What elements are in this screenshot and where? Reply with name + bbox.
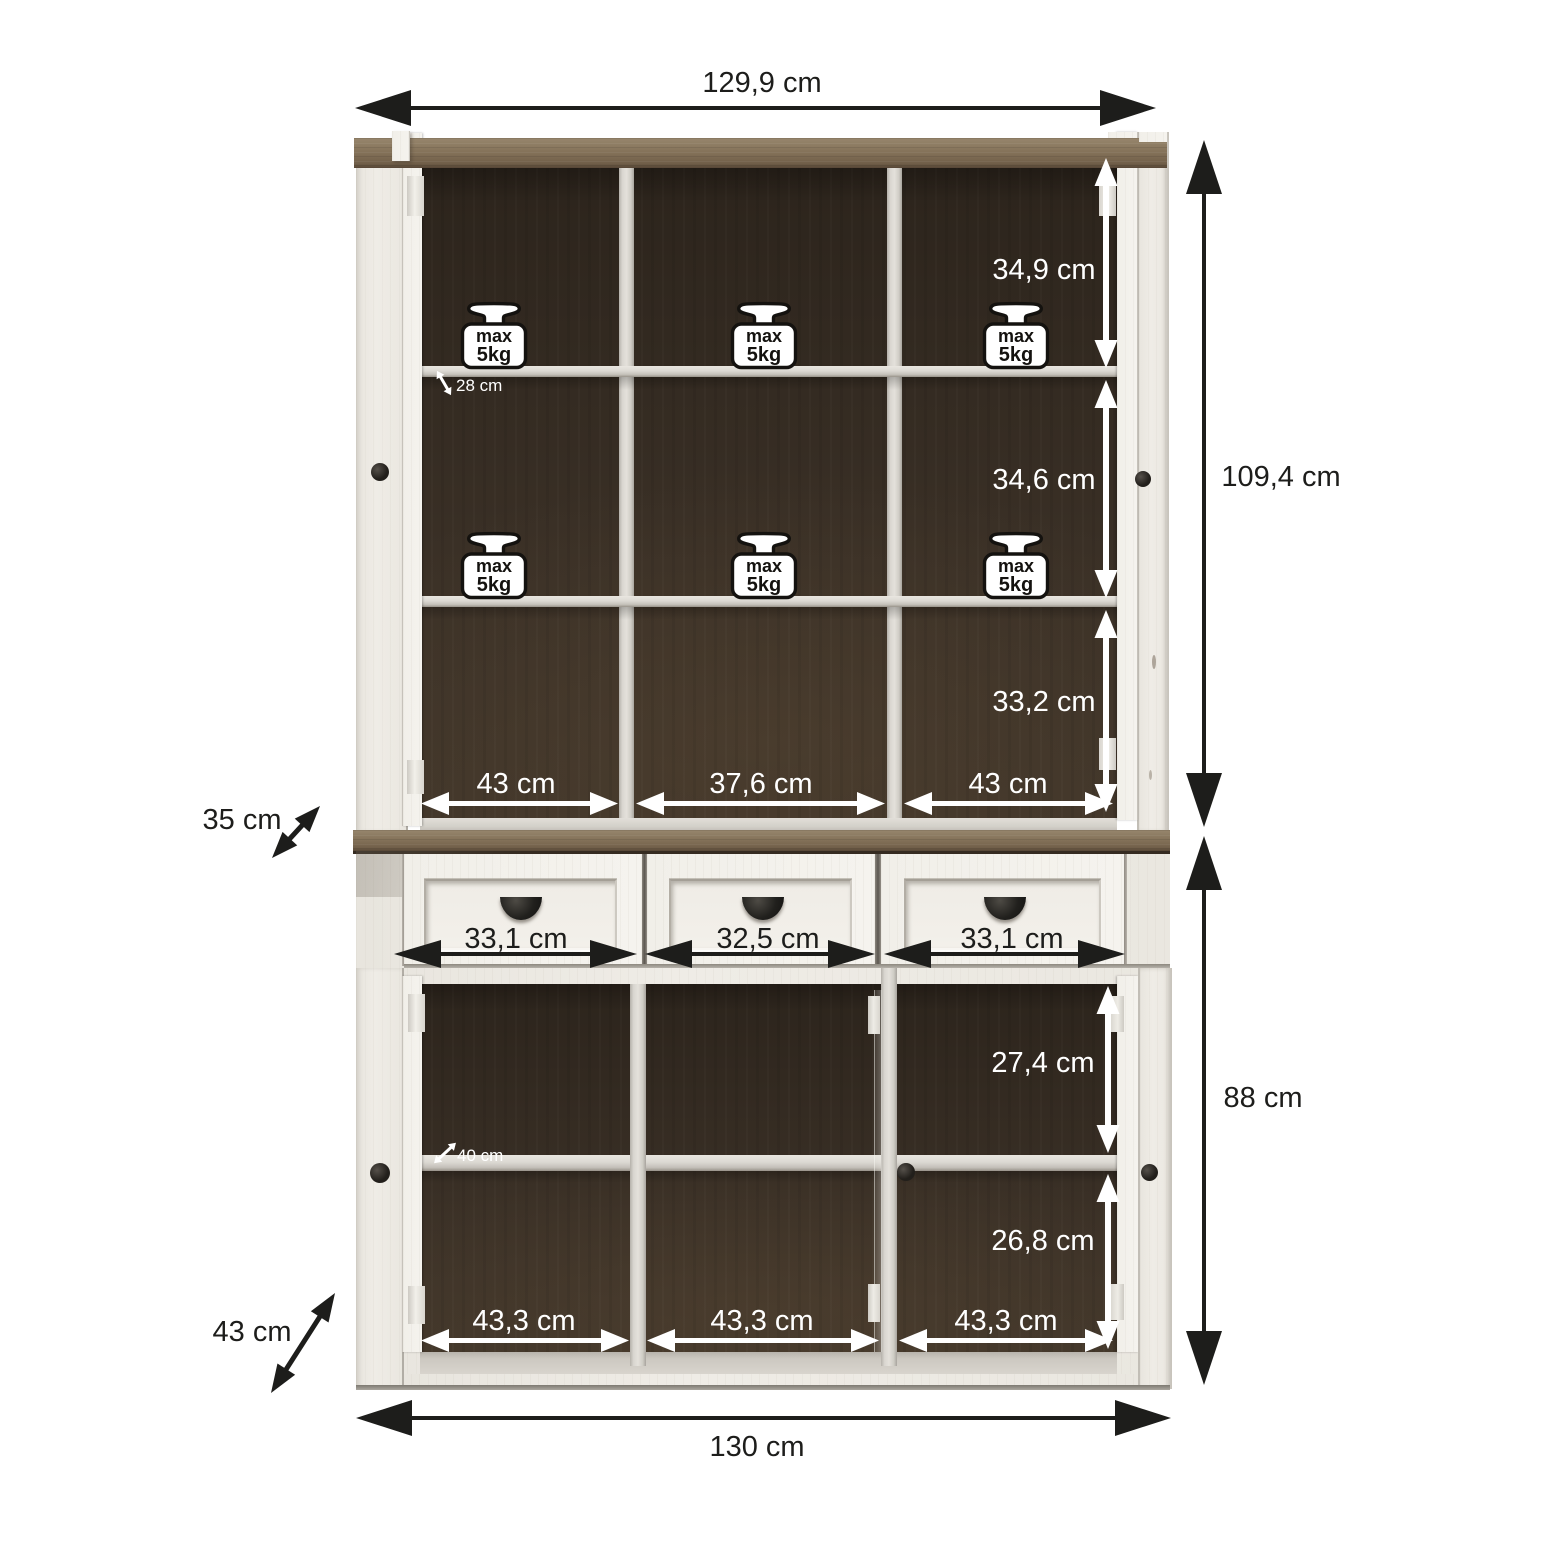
svg-text:32,5 cm: 32,5 cm	[716, 923, 819, 955]
svg-text:35 cm: 35 cm	[203, 804, 282, 836]
svg-text:43,3 cm: 43,3 cm	[710, 1305, 813, 1337]
svg-text:130 cm: 130 cm	[709, 1431, 804, 1463]
svg-text:43 cm: 43 cm	[969, 768, 1048, 800]
svg-text:43 cm: 43 cm	[477, 768, 556, 800]
svg-text:27,4 cm: 27,4 cm	[991, 1047, 1094, 1079]
svg-text:28 cm: 28 cm	[456, 376, 502, 395]
svg-text:109,4 cm: 109,4 cm	[1221, 461, 1340, 493]
svg-text:43,3 cm: 43,3 cm	[954, 1305, 1057, 1337]
svg-text:43 cm: 43 cm	[213, 1316, 292, 1348]
svg-text:33,1 cm: 33,1 cm	[960, 923, 1063, 955]
svg-text:88 cm: 88 cm	[1224, 1082, 1303, 1114]
svg-text:26,8 cm: 26,8 cm	[991, 1225, 1094, 1257]
svg-text:40 cm: 40 cm	[457, 1146, 503, 1165]
svg-text:43,3 cm: 43,3 cm	[472, 1305, 575, 1337]
svg-text:34,9 cm: 34,9 cm	[992, 254, 1095, 286]
svg-text:33,1 cm: 33,1 cm	[464, 923, 567, 955]
svg-text:129,9 cm: 129,9 cm	[702, 67, 821, 99]
svg-text:33,2 cm: 33,2 cm	[992, 686, 1095, 718]
svg-text:34,6 cm: 34,6 cm	[992, 464, 1095, 496]
svg-text:37,6 cm: 37,6 cm	[709, 768, 812, 800]
